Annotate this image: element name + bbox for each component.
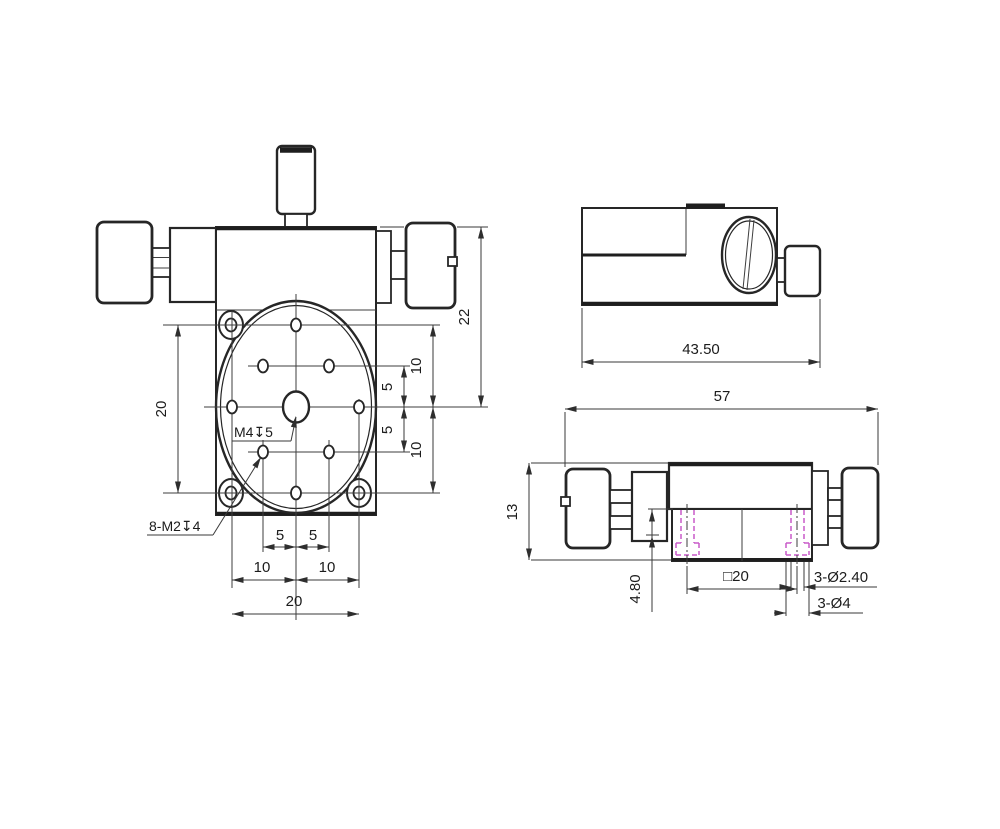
dim-text: 13 [504,504,521,521]
mounting-hole [258,446,268,459]
dim-text: 5 [379,426,396,434]
dim-text: 4.80 [627,574,644,603]
side-view-bottom: 57 [504,388,878,616]
dim-text: 5 [276,527,284,544]
dim-right-chain: 10 10 5 5 [379,325,436,493]
engineering-drawing-canvas: 20 10 10 5 5 22 [0,0,1000,829]
bottom-left-block [632,472,667,541]
side-view-top: 43.50 [582,206,820,368]
bottom-left-knob-setscrew [561,497,570,506]
center-hole-label: M4↧5 [234,424,273,440]
bottom-right-shaft [828,516,842,528]
bottom-left-shaft [610,490,632,503]
dim-text: 20 [153,401,170,418]
bottom-left-knob [566,469,610,548]
dim-text: 10 [319,559,336,576]
top-adjustment-knob [277,146,315,214]
dim-text: 3-Ø2.40 [814,569,868,586]
dim-text: 10 [254,559,271,576]
mounting-hole [258,360,268,373]
dim-57: 57 [565,388,878,467]
dim-text: 22 [456,309,473,326]
mounting-hole [354,401,364,414]
right-knob-setscrew [448,257,457,266]
dim-text: 5 [379,383,396,391]
bottom-right-block [812,471,828,545]
dim-text: 10 [408,442,425,459]
dim-43-50: 43.50 [582,299,820,368]
bottom-right-shaft [828,488,842,500]
mounting-hole [291,487,301,500]
dim-vertical-20: 20 [153,325,181,493]
dim-text: 3-Ø4 [817,595,850,612]
bottom-left-shaft [610,516,632,529]
front-view: 20 10 10 5 5 22 [97,146,488,620]
dim-text: 57 [714,388,731,405]
dim-3-dia-4: 3-Ø4 [774,595,863,616]
bottom-right-knob [842,468,878,548]
mounting-hole [324,360,334,373]
mounting-hole [291,319,301,332]
dim-text: 20 [286,593,303,610]
side-knob [785,246,820,296]
dim-square-20: □20 [687,566,797,594]
dim-text: 43.50 [682,341,720,358]
right-knob-shaft [391,251,406,279]
bottom-body-upper [669,463,812,509]
dim-text: 10 [408,358,425,375]
dim-3-dia-2-40: 3-Ø2.40 [780,569,878,590]
top-knob-neck [285,214,307,227]
left-knob-shaft [152,248,170,277]
dim-text: 5 [309,527,317,544]
right-bracket-plate [376,231,391,303]
stage-dimension-drawing: 20 10 10 5 5 22 [0,0,1000,829]
mounting-hole [227,401,237,414]
left-adjustment-knob [97,222,152,303]
pattern-holes-label: 8-M2↧4 [149,518,201,534]
left-bracket-block [170,228,216,302]
dim-text: □20 [723,568,749,585]
mounting-hole [324,446,334,459]
